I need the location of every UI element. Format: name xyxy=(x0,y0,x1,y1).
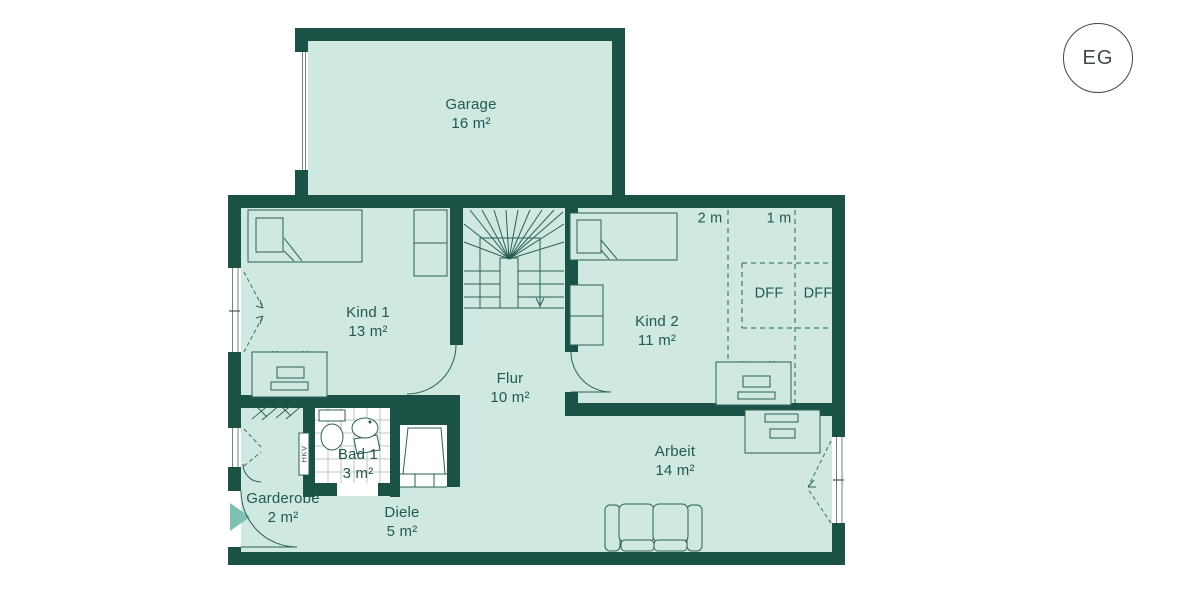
kind1-wardrobe xyxy=(414,210,447,276)
knee-wall-2m-label: 2 m xyxy=(698,210,723,229)
room-label-bad1: Bad 1 3 m² xyxy=(338,445,378,483)
bath-door-opening xyxy=(337,483,378,496)
kind2-desk xyxy=(716,361,791,405)
room-area: 14 m² xyxy=(655,461,695,480)
room-label-kind1: Kind 1 13 m² xyxy=(346,303,390,341)
room-label-garage: Garage 16 m² xyxy=(445,95,496,133)
room-area: 10 m² xyxy=(490,388,529,407)
room-name: Flur xyxy=(490,369,529,388)
room-label-diele: Diele 5 m² xyxy=(384,503,419,541)
bath-bottom-wall-right xyxy=(378,483,400,496)
garage-door xyxy=(295,52,308,170)
hkv-label: HKV xyxy=(300,446,309,463)
room-name: Arbeit xyxy=(655,442,695,461)
left-wall-seg3 xyxy=(228,467,241,491)
room-area: 2 m² xyxy=(246,508,320,527)
roof-window-left-label: DFF xyxy=(755,285,784,304)
stair-left-wall-lower xyxy=(447,395,460,487)
main-top-wall xyxy=(228,195,845,208)
kind1-bed xyxy=(248,210,362,262)
room-area: 5 m² xyxy=(384,522,419,541)
garage-right-wall xyxy=(612,28,625,200)
room-area: 11 m² xyxy=(635,331,679,350)
arbeit-sofa xyxy=(605,504,702,551)
knee-wall-1m-label: 1 m xyxy=(767,210,792,229)
room-area: 3 m² xyxy=(338,464,378,483)
room-label-garderobe: Garderobe 2 m² xyxy=(246,489,320,527)
roof-window-right-label: DFF xyxy=(804,285,833,304)
room-name: Garderobe xyxy=(246,489,320,508)
stair-left-wall xyxy=(450,208,463,345)
kind2-bed xyxy=(570,213,677,260)
room-area: 13 m² xyxy=(346,322,390,341)
room-label-flur: Flur 10 m² xyxy=(490,369,529,407)
floor-level-text: EG xyxy=(1083,47,1114,70)
room-name: Kind 2 xyxy=(635,312,679,331)
window-kind1 xyxy=(228,268,241,352)
floor-plan-canvas: Garage 16 m² Kind 1 13 m² Kind 2 11 m² F… xyxy=(0,0,1200,600)
kind1-desk xyxy=(252,351,327,397)
window-arbeit xyxy=(832,437,845,523)
lower-stair-top-wall xyxy=(398,405,447,425)
bottom-wall xyxy=(228,552,845,565)
room-label-arbeit: Arbeit 14 m² xyxy=(655,442,695,480)
kind2-wardrobe xyxy=(570,285,603,345)
floor-level-badge: EG xyxy=(1063,23,1133,93)
room-label-kind2: Kind 2 11 m² xyxy=(635,312,679,350)
left-wall-seg1 xyxy=(228,208,241,268)
garage-left-wall-upper xyxy=(295,28,308,52)
right-wall-seg1 xyxy=(832,208,845,437)
garage-top-wall xyxy=(295,28,625,41)
room-name: Garage xyxy=(445,95,496,114)
floor-plan-drawing xyxy=(0,0,1200,600)
arbeit-desk xyxy=(745,410,820,453)
room-name: Diele xyxy=(384,503,419,522)
room-name: Bad 1 xyxy=(338,445,378,464)
left-wall-seg2 xyxy=(228,352,241,428)
toilet-icon xyxy=(319,410,345,450)
room-area: 16 m² xyxy=(445,114,496,133)
window-garderobe xyxy=(228,428,241,467)
room-name: Kind 1 xyxy=(346,303,390,322)
